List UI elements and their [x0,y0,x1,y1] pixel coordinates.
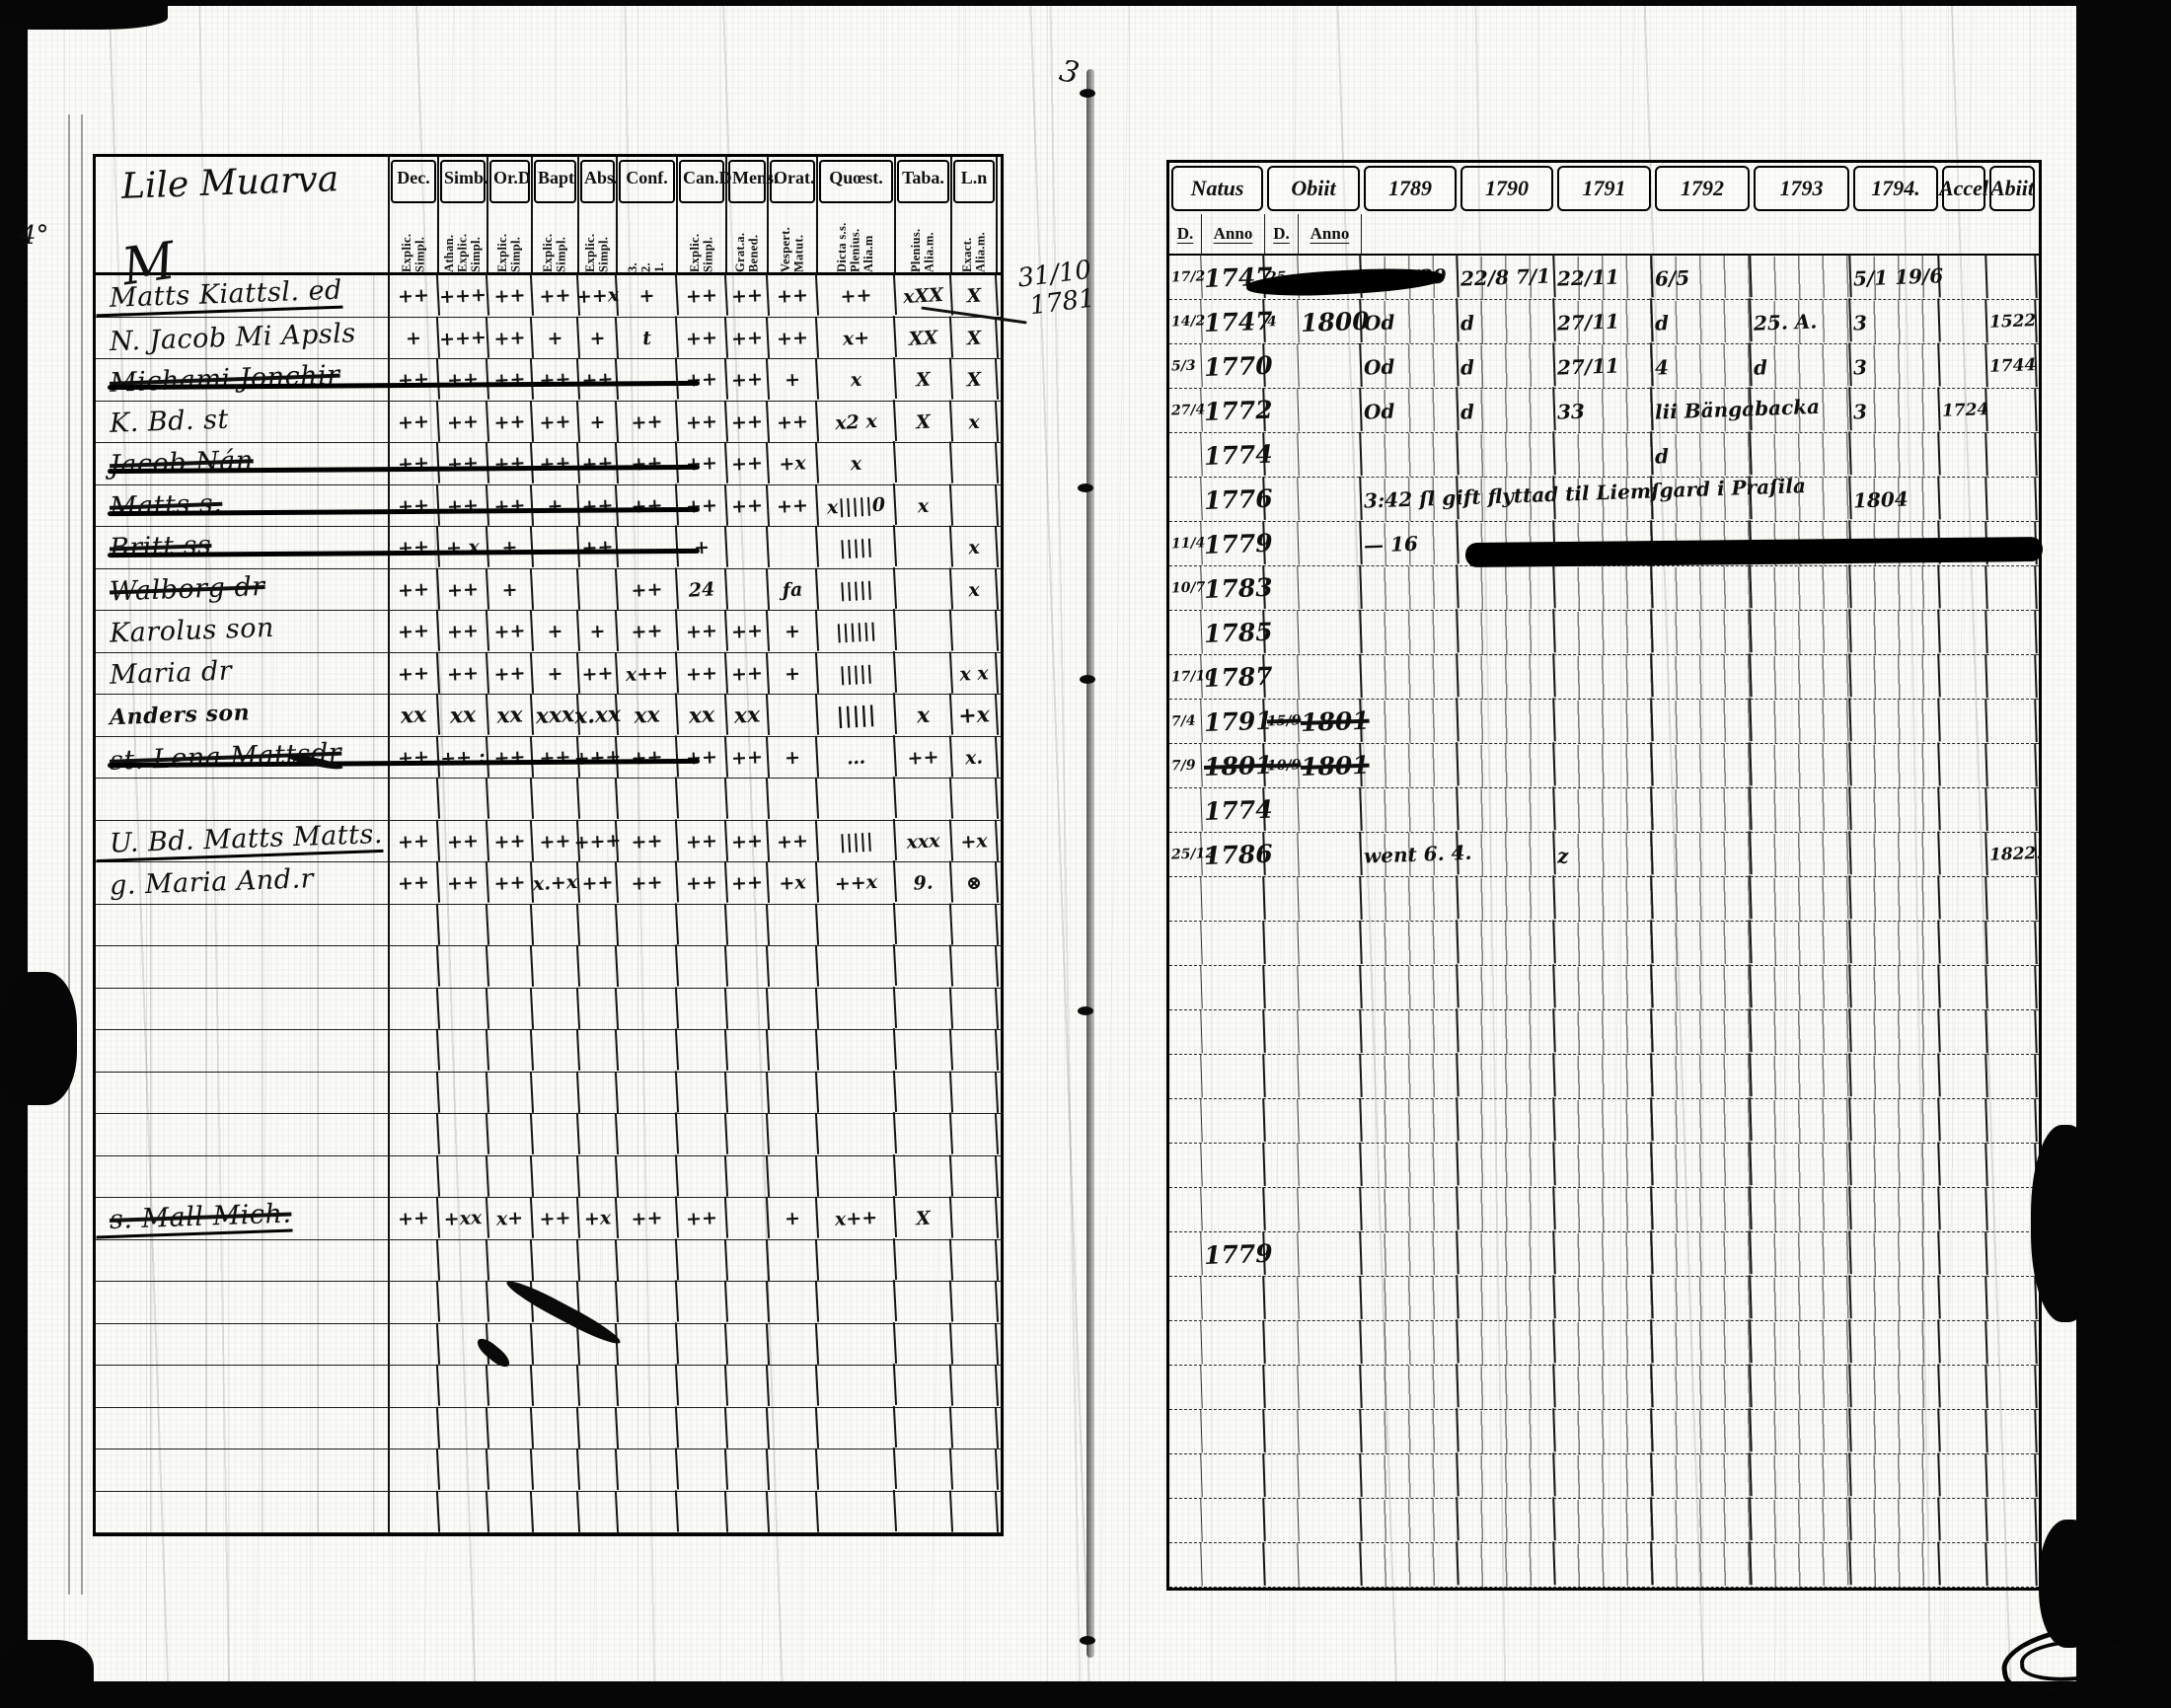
mark-cell: + [487,567,534,611]
mark-cell [1652,1275,1752,1321]
mark-cell: ++ [677,400,728,443]
year-record-row [1169,966,2039,1010]
mark-cell [677,987,728,1030]
mark-cell [578,1491,619,1533]
year-record-row [1169,1144,2039,1188]
year-record-row: 17/101787 [1169,655,2039,700]
mark-cell [487,903,534,946]
person-name: Maria dr [96,655,233,691]
mark-cell [617,777,679,821]
mark-cell [1554,1364,1653,1410]
mark-cell: ++ [617,567,679,612]
mark-cell [1298,832,1362,877]
column-header: L.n Exact. Alia.m. [952,157,998,272]
mark-cell: ++ [389,735,440,779]
person-name-cell: Michami Jonchir [96,359,390,401]
mark-cell [1554,1319,1653,1366]
mark-cell [895,987,953,1030]
mark-cell: ++ [578,442,619,484]
mark-cell: ++ [389,358,440,402]
mark-cell [1986,1276,2038,1321]
mark-cell: ga [1652,520,1752,566]
scan-edge-bottom-left [0,1640,94,1708]
mark-cell: x2 x [817,399,897,444]
person-name: Karolus son [96,613,275,649]
mark-cell [1850,1053,1940,1099]
mark-cell [1850,786,1940,833]
mark-cell [1361,1230,1459,1277]
mark-cell: 1774 [1201,432,1265,478]
mark-cell [1554,920,1653,966]
mark-cell [1939,1453,1988,1499]
person-name-cell: K. Bd. st [96,402,390,443]
mark-cell [951,1029,999,1073]
mark-cell: 17/2 [1168,255,1203,299]
mark-cell [677,1029,728,1073]
person-name-cell [96,779,390,820]
mark-cell: x [951,567,999,611]
mark-cell [1751,831,1851,877]
mark-cell [1652,1452,1752,1499]
mark-cell: 27/4 [1168,388,1203,432]
column-header: Mens. Grat.a. Bened. [727,157,769,272]
mark-cell [1652,831,1752,877]
mark-cell: 1776 [1201,477,1265,522]
mark-cell [617,944,679,989]
mark-cell [1298,388,1362,433]
mark-cell: ++ [487,442,534,485]
mark-cell [1168,1409,1203,1453]
register-row [96,946,1001,989]
mark-cell: 4 90/39 [1361,254,1459,300]
mark-cell: ++ [389,526,440,569]
mark-cell [1939,832,1988,877]
mark-cell [1850,564,1940,611]
year-record-row: 1785 [1169,611,2039,655]
mark-cell [1458,1186,1555,1232]
mark-cell: X [895,358,953,402]
mark-cell [438,903,489,946]
mark-cell: ++ [487,400,534,443]
mark-cell: Od [1361,342,1459,389]
mark-cell: 1801 [1201,743,1265,788]
mark-cell [1939,299,1988,344]
mark-cell [578,988,619,1030]
mark-cell: ++ [617,819,679,863]
mark-cell [1298,1365,1362,1410]
mark-cell [726,1365,770,1408]
mark-cell: x+ [487,1197,534,1240]
mark-cell [389,778,440,821]
column-header-box: 1794. [1853,166,1938,211]
subheader-cell: D. [1169,214,1202,254]
mark-cell: ++x [817,860,897,906]
mark-cell [1298,1542,1362,1588]
mark-cell: X [951,358,999,402]
mark-cell: went 6. 4. [1361,831,1459,877]
right-register-table: Natus Obiit 1789 1790 1791 1792 1793 17 [1166,160,2042,1591]
mark-cell [1554,520,1653,566]
mark-cell [1458,1452,1555,1499]
year-record-row: 11/41779— 16ga [1169,522,2039,566]
mark-cell: d [1458,387,1555,433]
mark-cell [1939,1098,1988,1144]
mark-cell: ++ [389,274,440,318]
mark-cell [677,1281,728,1324]
mark-cell: + [532,610,580,653]
mark-cell [1458,1319,1555,1366]
column-label: Mens. [728,160,766,203]
register-row: Walborg dr +++++++24ƒa|||||x [96,569,1001,612]
mark-cell: ++ [389,483,440,527]
mark-cell [1939,343,1988,389]
mark-cell [895,1365,953,1408]
mark-cell [389,1154,440,1198]
mark-cell [1361,1275,1459,1321]
mark-cell: ++ [487,274,534,318]
mark-cell [1168,1365,1203,1409]
scanned-parish-register: { "document": { "gutter_top_mark": "3", … [0,0,2171,1708]
mark-cell [1986,787,2038,833]
mark-cell [895,778,953,821]
mark-cell: + [532,316,580,359]
mark-cell [895,1154,953,1198]
mark-cell [677,1322,728,1366]
column-header-box: 1789 [1364,166,1457,211]
person-name: g. Maria And.r [96,863,315,902]
year-record-row [1169,1277,2039,1321]
mark-cell [1361,1408,1459,1454]
column-header-label: 1792 [1681,176,1724,201]
mark-cell [438,1490,489,1533]
mark-cell [1652,1053,1752,1099]
mark-cell [1652,1364,1752,1410]
column-subheader: Explic. Simpl. [584,207,611,272]
mark-cell [438,1071,489,1114]
mark-cell [1298,477,1362,522]
year-record-row: 1774 [1169,788,2039,833]
person-name: Jacob Nán [96,445,255,482]
mark-cell: |||||| [817,609,897,654]
person-name-cell: st. Lena Mattsdr [96,737,390,779]
column-header-label: 1793 [1780,176,1824,201]
mark-cell: + [532,483,580,527]
column-header-box: 1791 [1557,166,1651,211]
mark-cell: x++ [817,1196,897,1241]
mark-cell [1298,1276,1362,1321]
mark-cell [1201,1320,1265,1366]
mark-cell [1264,1276,1300,1320]
mark-cell: ||||| [817,566,897,612]
mark-cell [1168,1453,1203,1498]
mark-cell [1361,1186,1459,1232]
mark-cell [1554,1230,1653,1277]
mark-cell: 3 [1850,387,1940,433]
mark-cell: x [951,526,999,569]
mark-cell [677,903,728,946]
column-header: Simb. Athan. Explic. Simpl. [439,157,488,272]
mark-cell [1264,1409,1300,1453]
mark-cell [1850,1186,1940,1232]
subheader-label: D. [1177,224,1194,244]
column-label: Conf. [619,160,675,203]
register-row [96,1073,1001,1115]
mark-cell [726,1071,770,1114]
register-row: Michami Jonchir +++++++++++++++xXX [96,359,1001,402]
mark-cell [1458,1364,1555,1410]
mark-cell [1939,477,1988,522]
subheader-cell: Anno [1202,214,1265,254]
mark-cell: ++ [677,861,728,905]
mark-cell: 1786 [1201,832,1265,877]
mark-cell [1751,742,1851,788]
mark-cell [1939,1409,1988,1454]
mark-cell [1201,1409,1265,1454]
mark-cell [1458,431,1555,478]
mark-cell [389,1029,440,1073]
right-table-body: 17/21747254 90/3922/8 7/122/116/55/1 19/… [1169,256,2039,1588]
mark-cell [1298,1054,1362,1099]
mark-cell [1986,876,2038,922]
column-header-label: 1794. [1871,176,1920,201]
mark-cell [1850,431,1940,478]
mark-cell [1751,786,1851,833]
mark-cell: ++ [438,567,489,611]
mark-cell [677,1365,728,1408]
column-subheader: Grat.a. Bened. [734,207,761,272]
mark-cell [951,1113,999,1156]
mark-cell: ++ [677,316,728,359]
mark-cell [895,1238,953,1282]
mark-cell [677,1113,728,1156]
mark-cell [1652,698,1752,744]
mark-cell: xx [438,694,489,737]
mark-cell [617,1112,679,1156]
person-name: K. Bd. st [96,404,230,439]
mark-cell [726,1154,770,1198]
mark-cell [726,526,770,569]
mark-cell [1201,1365,1265,1410]
mark-cell [617,987,679,1031]
column-header-box: Abiit [1989,166,2035,211]
mark-cell: +++ [438,274,489,318]
mark-cell [1201,1542,1265,1588]
mark-cell [438,778,489,821]
mark-cell [677,1238,728,1282]
year-record-row [1169,922,2039,966]
mark-cell [487,1071,534,1114]
mark-cell [1298,921,1362,966]
mark-cell [578,1029,619,1072]
mark-cell [1652,1497,1752,1543]
mark-cell: + [768,610,819,653]
mark-cell: + x [438,526,489,569]
mark-cell [1264,1542,1300,1587]
mark-cell [1850,742,1940,788]
mark-cell [768,1029,819,1073]
mark-cell [1751,964,1851,1010]
mark-cell [1458,1053,1555,1099]
mark-cell [1264,610,1300,654]
mark-cell [1458,1541,1555,1588]
mark-cell [1264,432,1300,477]
column-subheader: Explic. Simpl. [542,207,568,272]
mark-cell: ++ [726,274,770,318]
mark-cell [817,1321,897,1367]
register-row: Karolus son +++++++++++++++|||||| [96,611,1001,653]
mark-cell: 7/4 [1168,699,1203,743]
mark-cell [1939,610,1988,655]
mark-cell [817,1405,897,1450]
mark-cell [1850,1452,1940,1499]
mark-cell [1986,743,2038,788]
mark-cell [1850,1230,1940,1277]
mark-cell [1850,1319,1940,1366]
mark-cell [1652,1230,1752,1277]
mark-cell: ++ [532,358,580,402]
mark-cell: x [951,400,999,443]
subheader-cell: D. [1265,214,1299,254]
mark-cell [532,987,580,1030]
mark-cell [487,778,534,821]
mark-cell [1652,1142,1752,1188]
mark-cell: X [895,1197,953,1240]
mark-cell: ++ [487,861,534,905]
register-row: Jacob Nán +++++++++++++++++xx [96,443,1001,485]
column-header-label: Obiit [1291,176,1335,201]
mark-cell [895,945,953,989]
mark-cell [1986,521,2038,566]
stitch-mark [1080,675,1095,684]
mark-cell [895,651,953,695]
mark-cell [951,1365,999,1408]
column-header-label: Abiit [1990,176,2034,201]
margin-rule [68,114,70,1595]
mark-cell [951,1406,999,1449]
mark-cell [1986,388,2038,433]
mark-cell [1201,1453,1265,1499]
mark-cell: + [768,358,819,402]
mark-cell [1361,1053,1459,1099]
mark-cell [1201,921,1265,966]
mark-cell: d [1458,298,1555,344]
mark-cell: ++ [578,861,619,904]
mark-cell [726,945,770,989]
mark-cell: 1724 [1939,388,1988,433]
mark-cell: + [578,401,619,443]
mark-cell: ++ [389,651,440,695]
mark-cell [1986,1098,2038,1144]
person-name-cell: Anders son [96,695,390,736]
mark-cell [1168,1009,1203,1054]
person-name-cell: Britt ss [96,527,390,568]
mark-cell: 1783 [1201,565,1265,611]
year-record-row: 27/41772Odd33lii Bängabacka31724 [1169,389,2039,433]
mark-cell [1986,1498,2038,1543]
mark-cell: 5/1 19/6 [1850,254,1940,300]
scan-edge-bottom-band [0,1681,2171,1708]
person-name-cell [96,1114,390,1155]
register-row [96,1156,1001,1199]
register-row: U. Bd. Matts Matts. +++++++++++++++++++|… [96,821,1001,863]
mark-cell [768,1113,819,1156]
mark-cell [817,1028,897,1074]
mark-cell: ⊗ [951,861,999,905]
mark-cell: ++ [438,819,489,862]
mark-cell [1751,875,1851,922]
mark-cell [578,945,619,988]
mark-cell: 1801 [1298,743,1362,788]
column-header-label: Accel [1939,176,1988,201]
mark-cell: x.xx [578,694,619,736]
mark-cell: ++ [617,1196,679,1240]
mark-cell [1939,876,1988,922]
mark-cell [1298,965,1362,1010]
person-name-cell: Walborg dr [96,569,390,611]
mark-cell [617,1490,679,1534]
person-name-cell [96,1324,390,1366]
year-record-row: 14/2174741800Odd27/11d25. A.31522 [1169,300,2039,344]
mark-cell [1652,875,1752,922]
column-subheader: Athan. Explic. Simpl. [443,207,484,272]
mark-cell: X [895,400,953,443]
column-header: Dec. Explic. Simpl. [390,157,439,272]
mark-cell [1850,1541,1940,1588]
left-page-title-script: Lile Muarva [120,159,338,207]
mark-cell [1652,786,1752,833]
mark-cell [726,567,770,611]
mark-cell [1361,653,1459,700]
mark-cell [817,1153,897,1199]
stitch-mark [1080,89,1095,98]
mark-cell [1751,476,1851,522]
mark-cell [768,1365,819,1408]
mark-cell [1168,1231,1203,1276]
mark-cell: 1772 [1201,388,1265,433]
mark-cell [1168,1098,1203,1143]
mark-cell [1201,1054,1265,1099]
mark-cell [487,1365,534,1408]
mark-cell: ++ [617,441,679,485]
mark-cell: 1804 [1850,476,1940,522]
mark-cell [1986,1542,2038,1588]
mark-cell [1751,1541,1851,1588]
year-record-row: 5/31770Odd27/114d31744 [1169,344,2039,389]
mark-cell [1850,698,1940,744]
mark-cell [1458,1408,1555,1454]
year-record-row: 10/71783 [1169,566,2039,611]
column-header-box: Accel [1942,166,1985,211]
mark-cell [1751,431,1851,478]
mark-cell: 5/3 [1168,343,1203,388]
mark-cell [1850,1097,1940,1144]
left-margin-note: 4° [20,221,49,251]
mark-cell [1298,1098,1362,1144]
mark-cell: x [817,441,897,486]
mark-cell [1264,1143,1300,1187]
mark-cell [1361,1541,1459,1588]
mark-cell: ++ [487,483,534,527]
mark-cell [578,1239,619,1282]
mark-cell [895,442,953,485]
mark-cell: Od [1361,387,1459,433]
mark-cell: ||||| [817,525,897,570]
column-header: Can.D Explic. Simpl. [678,157,727,272]
mark-cell [817,986,897,1031]
mark-cell [895,1071,953,1114]
mark-cell: 17/10 [1168,654,1203,699]
column-header-label: 1789 [1388,176,1432,201]
